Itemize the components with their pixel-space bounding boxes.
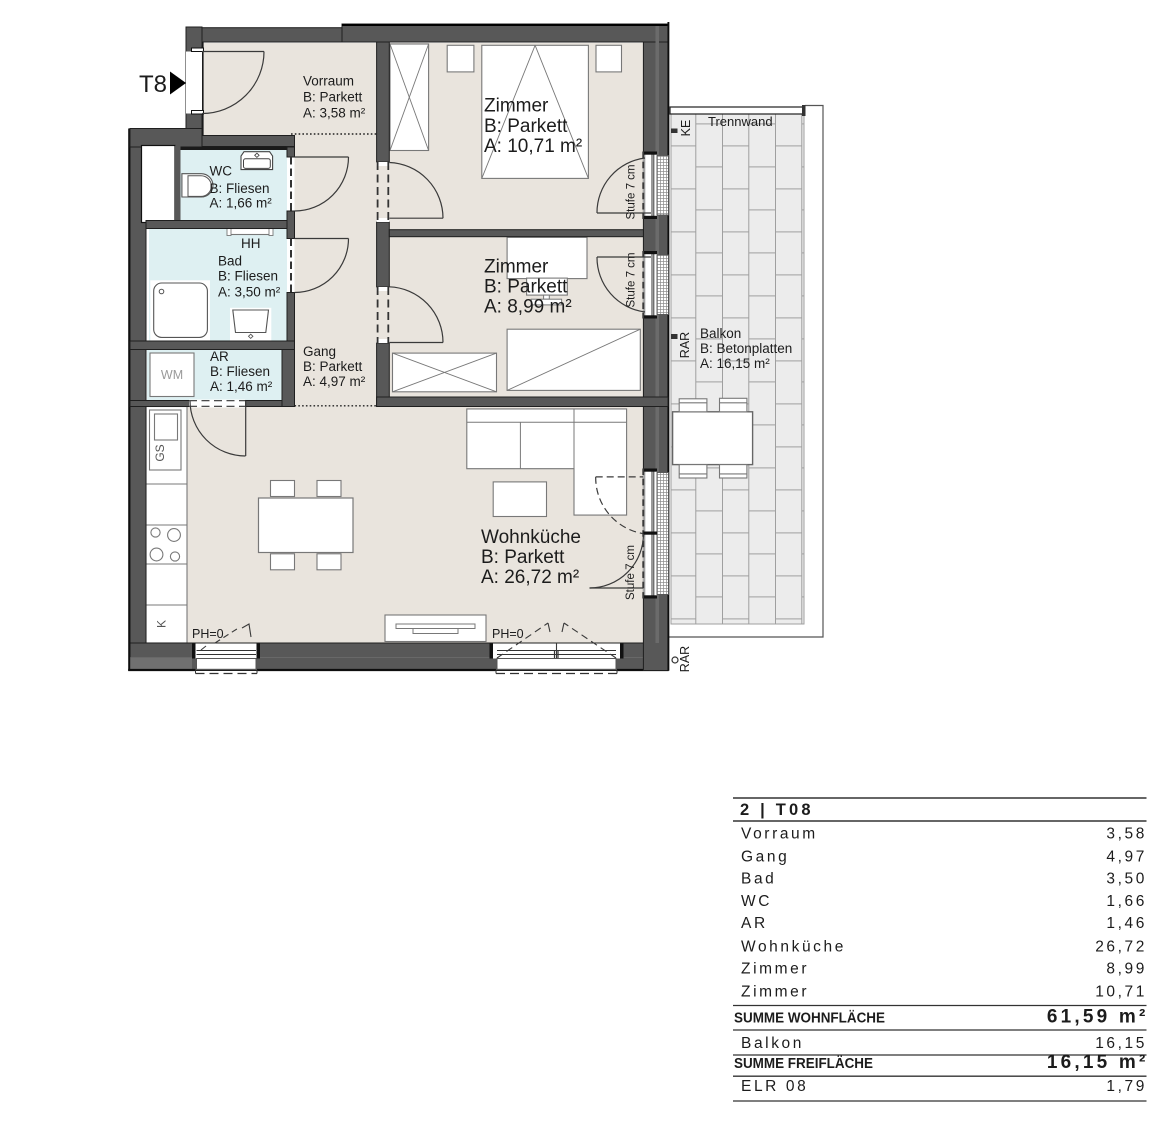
svg-text:Trennwand: Trennwand [708,114,773,129]
svg-text:K: K [155,620,169,628]
svg-text:Zimmer: Zimmer [741,983,809,1000]
svg-text:B: Betonplatten: B: Betonplatten [700,341,792,356]
svg-text:Zimmer: Zimmer [484,257,549,278]
svg-text:A: 1,66 m²: A: 1,66 m² [210,196,273,211]
svg-text:B: Parkett: B: Parkett [303,90,363,105]
svg-text:A: 10,71 m²: A: 10,71 m² [484,136,582,157]
svg-text:ELR 08: ELR 08 [741,1078,808,1095]
svg-text:Bad: Bad [741,871,776,888]
svg-text:Vorraum: Vorraum [303,74,354,89]
svg-text:Gang: Gang [303,344,336,359]
svg-text:B: Fliesen: B: Fliesen [210,181,270,196]
svg-text:A: 8,99 m²: A: 8,99 m² [484,296,572,317]
svg-text:A: 3,50 m²: A: 3,50 m² [218,285,281,300]
svg-text:WM: WM [161,368,183,382]
svg-text:B: Parkett: B: Parkett [484,116,568,137]
svg-text:A: 1,46 m²: A: 1,46 m² [210,379,273,394]
svg-text:A: 16,15 m²: A: 16,15 m² [700,356,770,371]
svg-text:1,79: 1,79 [1106,1078,1147,1095]
svg-text:B: Parkett: B: Parkett [481,547,565,568]
svg-text:A: 3,58 m²: A: 3,58 m² [303,106,366,121]
svg-text:Zimmer: Zimmer [741,961,809,978]
svg-text:B: Fliesen: B: Fliesen [210,364,270,379]
svg-text:WC: WC [741,893,772,910]
svg-text:A: 26,72 m²: A: 26,72 m² [481,567,579,588]
svg-text:WC: WC [210,164,233,179]
svg-text:2 | T08: 2 | T08 [740,801,814,819]
svg-text:16,15 m²: 16,15 m² [1047,1052,1149,1073]
svg-text:RAR: RAR [678,646,692,672]
svg-text:HH: HH [241,236,261,251]
svg-text:26,72: 26,72 [1095,938,1147,955]
svg-text:PH=0: PH=0 [492,627,524,641]
svg-text:KE: KE [679,120,693,137]
svg-text:RAR: RAR [678,332,692,358]
svg-text:GS: GS [153,444,167,461]
svg-text:Vorraum: Vorraum [741,826,818,843]
svg-text:Wohnküche: Wohnküche [741,938,846,955]
svg-text:PH=0: PH=0 [192,627,224,641]
svg-text:B: Parkett: B: Parkett [303,359,363,374]
svg-text:3,58: 3,58 [1106,826,1147,843]
svg-text:AR: AR [741,915,768,932]
svg-text:8,99: 8,99 [1106,961,1147,978]
svg-text:Bad: Bad [218,254,242,269]
svg-text:Stufe 7 cm: Stufe 7 cm [625,545,637,600]
svg-text:3,50: 3,50 [1106,871,1147,888]
svg-text:Balkon: Balkon [741,1035,804,1052]
svg-text:AR: AR [210,349,229,364]
svg-text:A: 4,97 m²: A: 4,97 m² [303,374,366,389]
svg-text:Zimmer: Zimmer [484,96,549,117]
svg-text:B: Fliesen: B: Fliesen [218,269,278,284]
svg-text:10,71: 10,71 [1095,983,1147,1000]
svg-text:Wohnküche: Wohnküche [481,527,581,548]
svg-text:1,66: 1,66 [1106,893,1147,910]
svg-text:Gang: Gang [741,848,789,865]
svg-text:B: Parkett: B: Parkett [484,277,568,298]
svg-text:61,59 m²: 61,59 m² [1047,1006,1149,1027]
svg-text:SUMME FREIFLÄCHE: SUMME FREIFLÄCHE [734,1055,873,1072]
svg-text:Stufe 7 cm: Stufe 7 cm [626,165,638,220]
svg-text:SUMME WOHNFLÄCHE: SUMME WOHNFLÄCHE [734,1009,885,1026]
svg-text:Stufe 7 cm: Stufe 7 cm [626,253,638,308]
svg-text:Balkon: Balkon [700,326,741,341]
svg-text:16,15: 16,15 [1095,1035,1147,1052]
svg-text:T8: T8 [139,71,167,98]
svg-text:1,46: 1,46 [1106,915,1147,932]
svg-text:4,97: 4,97 [1106,848,1147,865]
